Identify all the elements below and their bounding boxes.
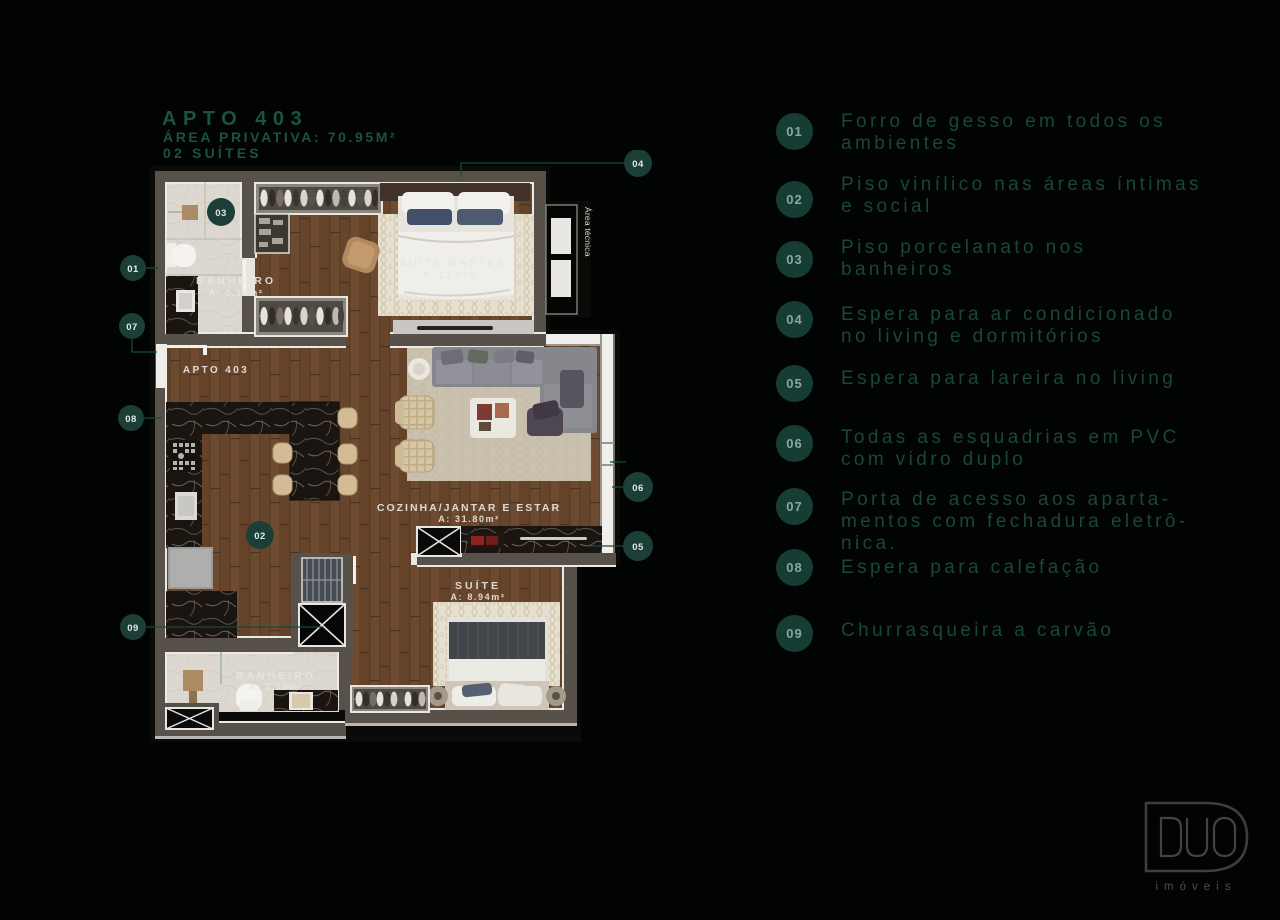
svg-text:COZINHA/JANTAR E ESTAR: COZINHA/JANTAR E ESTAR [377, 502, 561, 514]
svg-text:A: 3.10m²: A: 3.10m² [209, 288, 264, 298]
svg-text:06: 06 [632, 483, 644, 494]
svg-text:04: 04 [632, 159, 644, 170]
svg-text:01: 01 [127, 264, 139, 275]
svg-text:05: 05 [632, 542, 644, 553]
svg-text:07: 07 [126, 322, 138, 333]
svg-text:03: 03 [215, 208, 227, 219]
svg-text:Área técnica: Área técnica [583, 207, 593, 257]
svg-text:imóveis: imóveis [1156, 881, 1237, 893]
svg-text:09: 09 [127, 623, 139, 634]
svg-text:BANHEIRO: BANHEIRO [196, 275, 276, 287]
svg-text:SUÍTE MASTER: SUÍTE MASTER [400, 256, 507, 269]
svg-text:APTO 403: APTO 403 [183, 365, 249, 376]
svg-text:A: 8.94m²: A: 8.94m² [451, 592, 506, 602]
svg-text:SUÍTE: SUÍTE [455, 579, 501, 592]
svg-text:02: 02 [254, 531, 266, 542]
svg-text:A: 31.80m²: A: 31.80m² [438, 514, 500, 524]
svg-text:A: 13.02m²: A: 13.02m² [422, 270, 484, 280]
svg-text:08: 08 [125, 414, 137, 425]
svg-text:A: 3.19m²: A: 3.19m² [249, 682, 304, 692]
svg-text:BANHEIRO: BANHEIRO [236, 670, 316, 682]
